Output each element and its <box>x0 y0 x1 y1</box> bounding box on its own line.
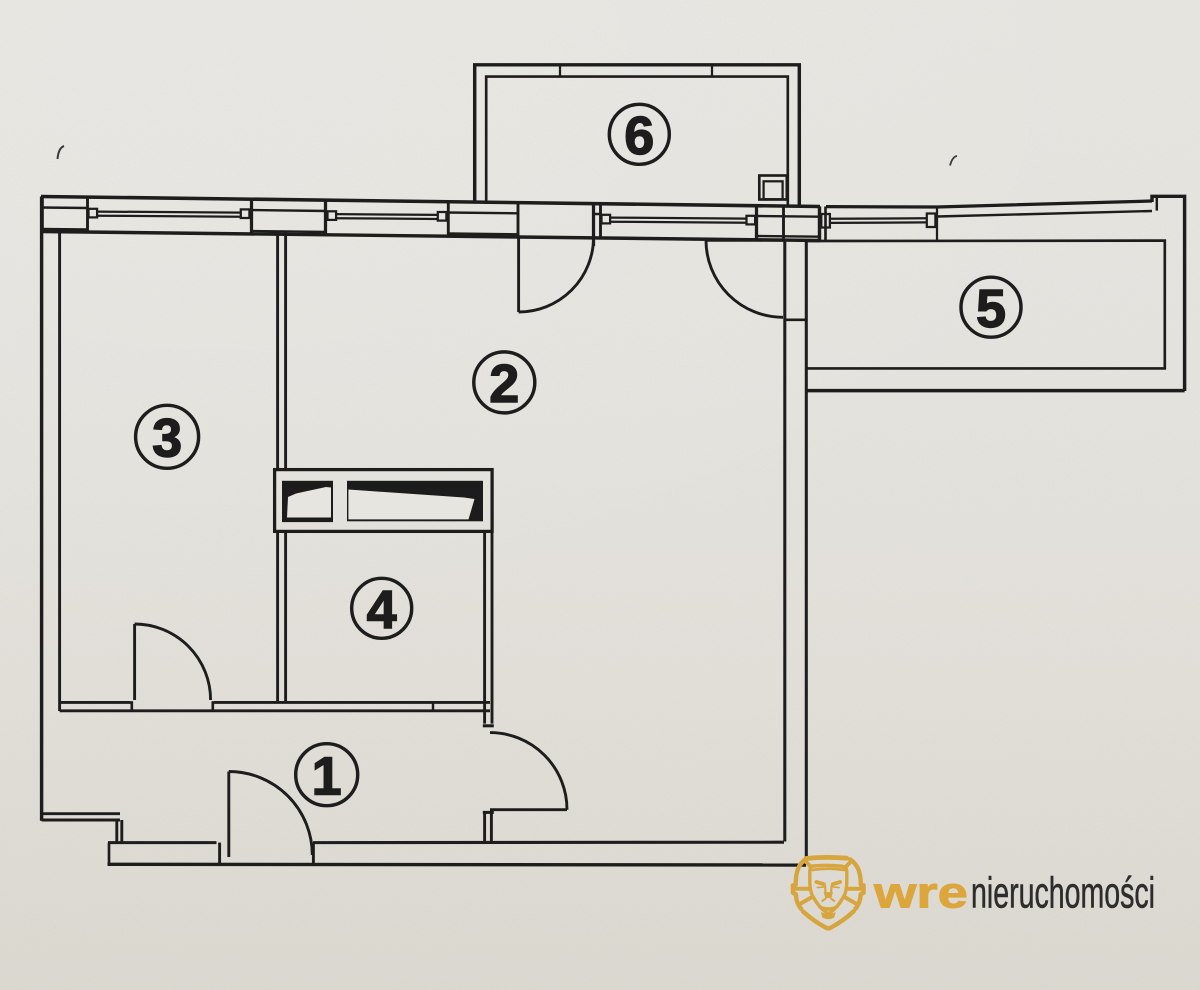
svg-text:1: 1 <box>312 746 342 806</box>
svg-text:6: 6 <box>624 106 654 166</box>
svg-text:3: 3 <box>152 409 182 469</box>
svg-text:2: 2 <box>489 354 519 414</box>
svg-text:5: 5 <box>976 279 1006 339</box>
svg-text:4: 4 <box>367 580 397 640</box>
svg-text:nieruchomości: nieruchomości <box>971 870 1155 918</box>
svg-text:wre: wre <box>873 870 968 918</box>
